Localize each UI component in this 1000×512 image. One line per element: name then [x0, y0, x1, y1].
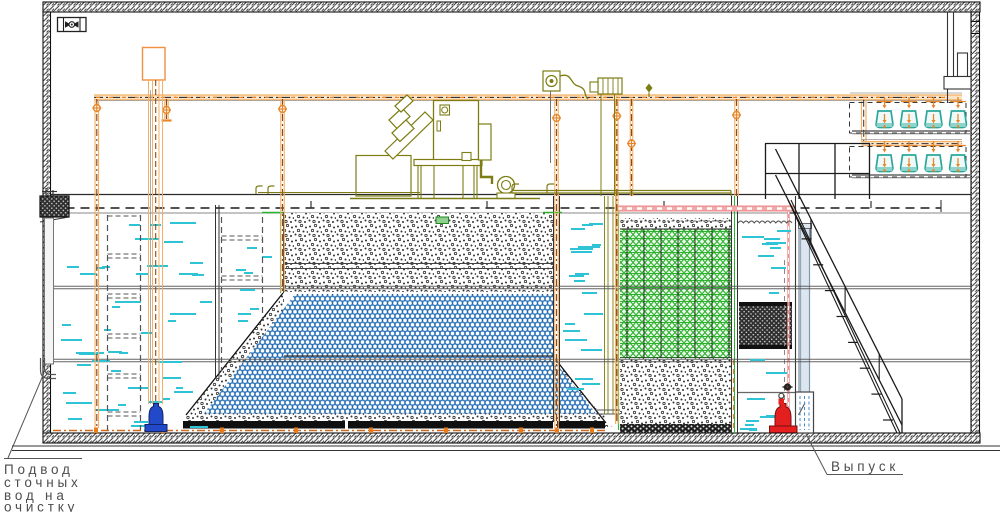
svg-text:Выпуск: Выпуск [831, 459, 899, 474]
svg-text:очистку: очистку [4, 500, 78, 512]
